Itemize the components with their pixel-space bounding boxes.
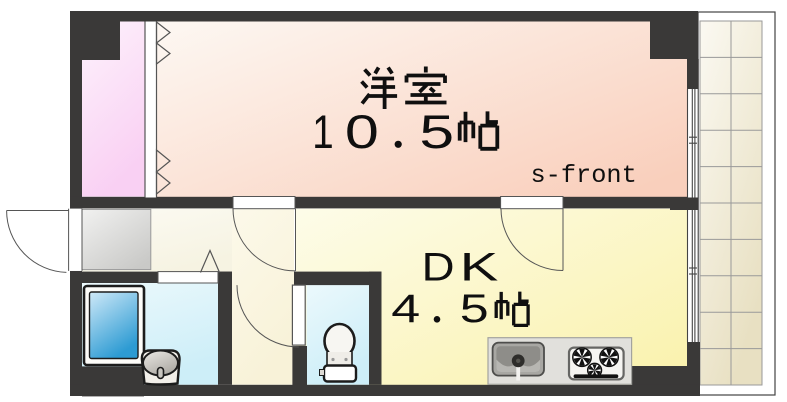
svg-text:1: 1	[312, 106, 333, 158]
svg-text:K: K	[460, 244, 499, 289]
svg-text:4: 4	[391, 286, 420, 331]
svg-text:s-front: s-front	[531, 161, 637, 190]
svg-text:5: 5	[419, 106, 454, 159]
svg-text:5: 5	[460, 286, 489, 331]
svg-text:0: 0	[345, 106, 379, 159]
svg-text:D: D	[422, 245, 455, 290]
